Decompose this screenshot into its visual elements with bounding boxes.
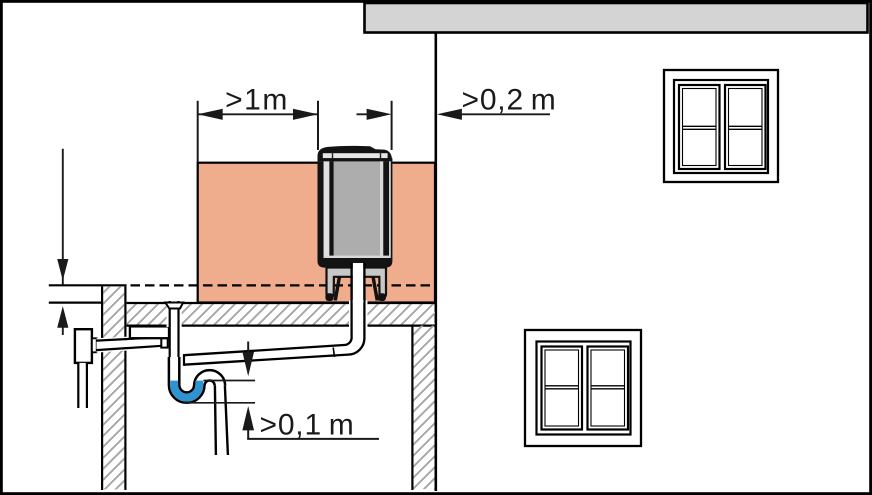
svg-text:>1m: >1m [225, 84, 289, 117]
svg-text:>0,1 m: >0,1 m [260, 409, 355, 442]
svg-text:>0,2 m: >0,2 m [462, 84, 557, 117]
